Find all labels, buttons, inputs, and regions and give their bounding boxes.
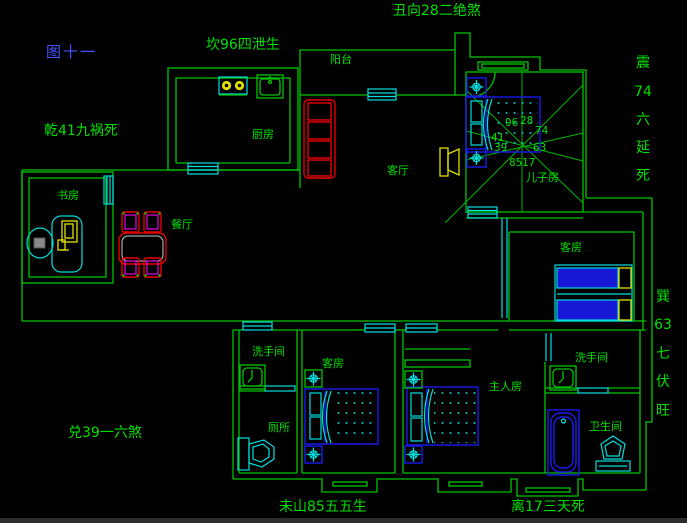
annotation-west: 兑39一六煞: [68, 426, 142, 440]
annotation-southwest: 未山85五五生: [279, 500, 367, 514]
compass-number-s-left: 85: [509, 157, 522, 168]
study-desk: [27, 216, 82, 272]
dining-set: [119, 212, 166, 277]
washbasin-right: [550, 366, 576, 390]
washroom-divider-window: [265, 386, 295, 391]
dining-chair: [144, 212, 161, 232]
room-label-toilet: 厕所: [268, 422, 290, 433]
room-label-washroom-left: 洗手间: [252, 346, 285, 357]
room-label-study: 书房: [57, 190, 79, 201]
figure-label: 图十一: [46, 45, 97, 60]
room-label-son-room: 儿子房: [526, 172, 559, 183]
twin-beds: [555, 265, 632, 321]
room-label-guest-right: 客房: [560, 242, 582, 253]
dining-chair: [122, 212, 139, 232]
master-door: [546, 333, 551, 361]
master-bed: [407, 387, 478, 445]
room-label-guest-bottom: 客房: [322, 358, 344, 369]
computer-monitor: [58, 221, 77, 250]
master-ceiling-light-bottom: [405, 446, 422, 463]
kitchen-window: [188, 163, 218, 174]
corridor-window-3: [406, 324, 437, 332]
stove: [219, 77, 247, 95]
room-label-master: 主人房: [489, 381, 522, 392]
cad-drawing-canvas[interactable]: 图十一 丑向28二绝煞 坎96四泄生 乾41九祸死 兑39一六煞 未山85五五生…: [0, 0, 687, 523]
balcony-window: [368, 89, 396, 100]
compass-number-s-right: 17: [522, 157, 535, 168]
guest-bed: [305, 389, 378, 444]
annotation-south: 离17三天死: [511, 500, 585, 514]
annotation-northwest: 乾41九祸死: [44, 124, 118, 138]
room-label-kitchen: 厨房: [252, 129, 274, 140]
toilet-squat: [238, 438, 274, 470]
guest-ceiling-light-bottom: [305, 446, 322, 463]
annotation-top: 丑向28二绝煞: [393, 4, 481, 18]
room-label-dining: 餐厅: [171, 219, 193, 230]
window-edge: [0, 518, 687, 523]
hall-glass-partition: [502, 218, 507, 318]
kitchen-walls: [168, 68, 298, 170]
annotation-north: 坎96四泄生: [206, 38, 280, 52]
sofa: [304, 100, 335, 178]
compass-number-e-lower: 63: [533, 142, 546, 153]
toilet-bathroom: [596, 436, 630, 471]
corridor-window-2: [365, 324, 395, 332]
corridor-window-1: [243, 322, 272, 330]
dining-chair: [122, 258, 139, 277]
compass-number-n-left: 96: [505, 117, 518, 128]
room-label-living: 客厅: [387, 165, 409, 176]
bathtub: [548, 410, 579, 475]
room-label-balcony: 阳台: [330, 54, 352, 65]
guest-ceiling-light-top: [305, 370, 322, 387]
bathroom-divider-window: [578, 388, 608, 393]
compass-number-w-lower: 39: [494, 142, 507, 153]
master-ceiling-light-top: [405, 371, 422, 388]
room-label-washroom-right: 洗手间: [575, 352, 608, 363]
room-label-bathroom: 卫生间: [589, 421, 622, 432]
compass-number-e-upper: 74: [535, 125, 548, 136]
dining-chair: [144, 258, 161, 277]
floor-plan-linework: [0, 0, 687, 523]
wall-lamp: [440, 148, 459, 176]
compass-number-n-right: 28: [520, 115, 533, 126]
